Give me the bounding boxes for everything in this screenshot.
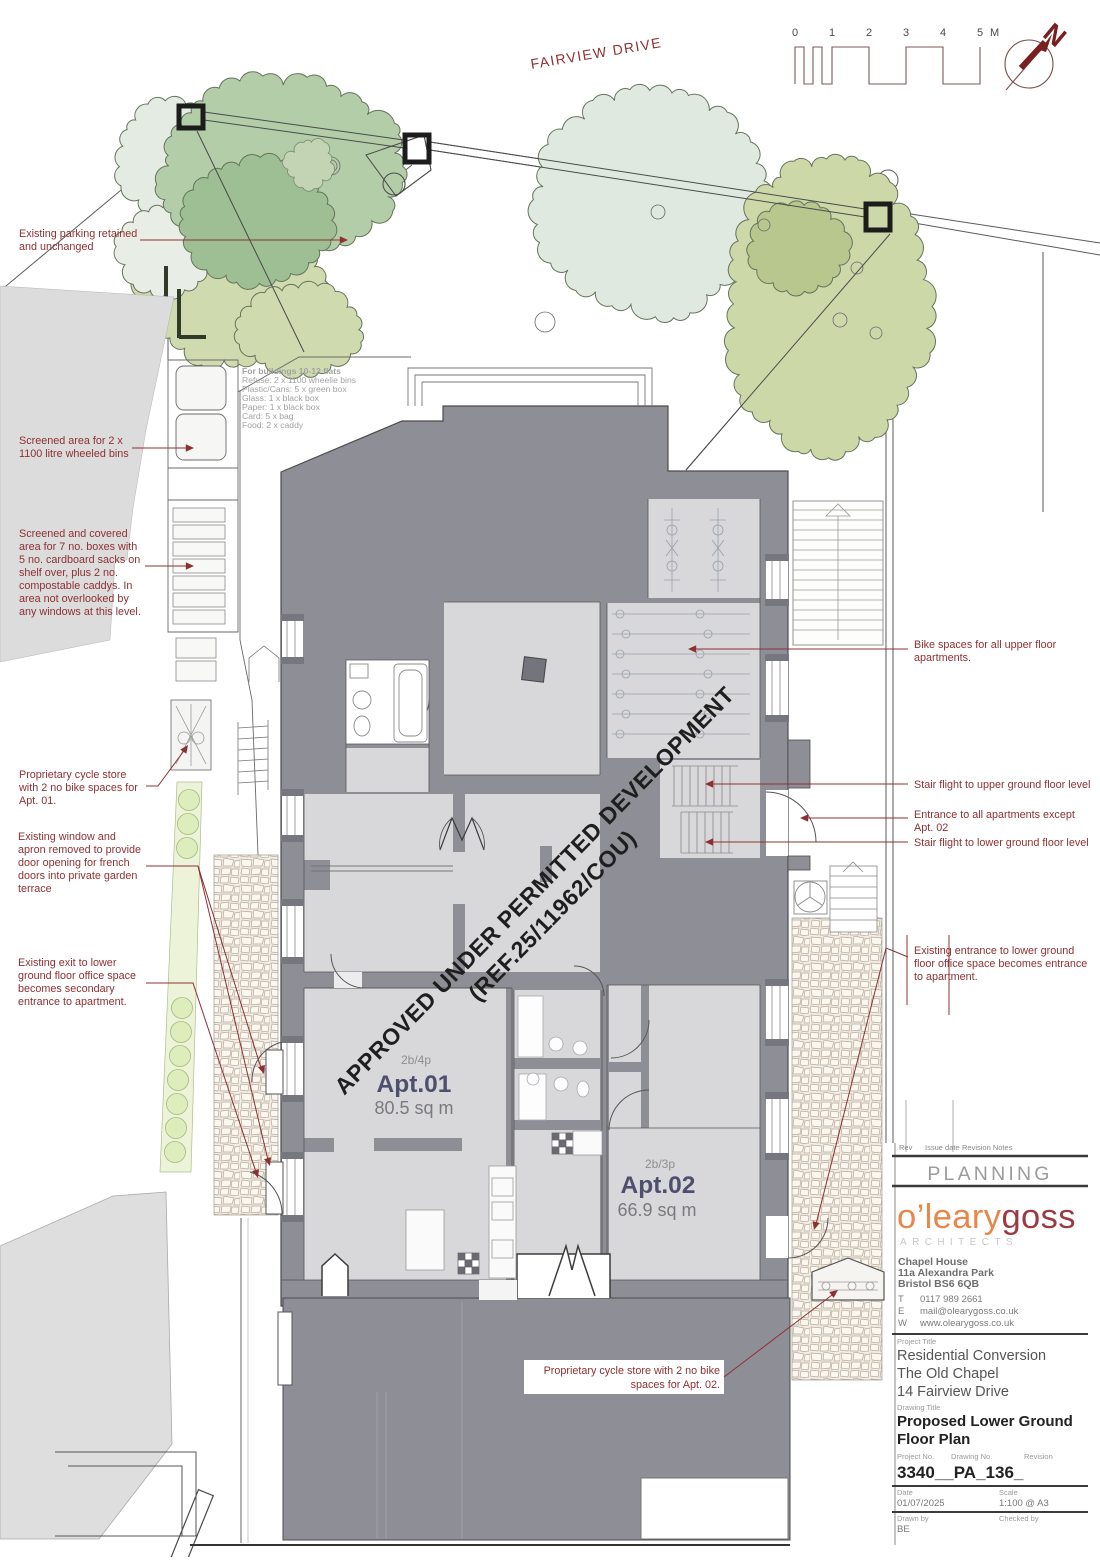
svg-text:1: 1 — [829, 27, 835, 39]
svg-text:and unchanged: and unchanged — [19, 241, 93, 253]
svg-text:shelf over, plus 2 no.: shelf over, plus 2 no. — [19, 567, 118, 579]
svg-text:becomes secondary: becomes secondary — [18, 983, 115, 995]
svg-text:Existing entrance to lower gro: Existing entrance to lower ground — [914, 945, 1074, 957]
svg-text:door opening for french: door opening for french — [18, 857, 130, 869]
svg-text:80.5 sq m: 80.5 sq m — [374, 1098, 453, 1118]
svg-text:floor office space becomes ent: floor office space becomes entrance — [914, 958, 1087, 970]
svg-text:doors into private garden: doors into private garden — [18, 870, 137, 882]
svg-text:E: E — [898, 1306, 904, 1317]
svg-text:2b/4p: 2b/4p — [401, 1053, 431, 1067]
svg-text:T: T — [898, 1294, 904, 1305]
svg-text:Date: Date — [897, 1488, 913, 1497]
svg-text:3: 3 — [903, 27, 909, 39]
svg-text:Project No.: Project No. — [897, 1452, 934, 1461]
svg-text:apartments.: apartments. — [914, 652, 971, 664]
svg-text:PLANNING: PLANNING — [927, 1163, 1052, 1185]
svg-text:Checked by: Checked by — [999, 1514, 1039, 1523]
svg-text:apron removed to provide: apron removed to provide — [18, 844, 141, 856]
svg-text:Residential Conversion: Residential Conversion — [897, 1348, 1046, 1364]
svg-text:compostable caddys. In: compostable caddys. In — [19, 580, 132, 592]
svg-text:2: 2 — [866, 27, 872, 39]
svg-text:66.9 sq m: 66.9 sq m — [617, 1200, 696, 1220]
svg-text:2b/3p: 2b/3p — [645, 1157, 675, 1171]
svg-text:ARCHITECTS: ARCHITECTS — [900, 1237, 1018, 1248]
svg-text:o’learygoss: o’learygoss — [897, 1198, 1076, 1236]
svg-text:Bristol BS6 6QB: Bristol BS6 6QB — [898, 1278, 980, 1290]
svg-text:Drawn by: Drawn by — [897, 1514, 929, 1523]
svg-text:5: 5 — [977, 27, 983, 39]
svg-text:Proposed Lower Ground: Proposed Lower Ground — [897, 1413, 1073, 1430]
svg-text:Existing parking retained: Existing parking retained — [19, 228, 137, 240]
svg-text:Revision: Revision — [1024, 1452, 1053, 1461]
svg-text:Existing window and: Existing window and — [18, 831, 116, 843]
svg-text:Apt.01: Apt.01 — [377, 1071, 452, 1098]
svg-text:terrace: terrace — [18, 883, 52, 895]
svg-text:Existing exit to lower: Existing exit to lower — [18, 957, 117, 969]
svg-text:1:100 @ A3: 1:100 @ A3 — [999, 1498, 1049, 1509]
svg-text:Screened and covered: Screened and covered — [19, 528, 128, 540]
svg-text:Food: 2 x caddy: Food: 2 x caddy — [242, 420, 304, 430]
svg-text:M: M — [990, 27, 999, 39]
svg-text:Proprietary cycle store with 2: Proprietary cycle store with 2 no bike — [544, 1365, 720, 1377]
svg-text:Project Title: Project Title — [897, 1337, 936, 1346]
svg-text:Revision Notes: Revision Notes — [962, 1143, 1013, 1152]
svg-text:14 Fairview Drive: 14 Fairview Drive — [897, 1384, 1009, 1400]
svg-text:Drawing Title: Drawing Title — [897, 1403, 940, 1412]
svg-text:Apt.02: Apt.02 — [621, 1172, 696, 1199]
svg-text:Floor Plan: Floor Plan — [897, 1431, 970, 1448]
svg-text:Screened area for 2 x: Screened area for 2 x — [19, 435, 123, 447]
svg-text:Proprietary cycle store: Proprietary cycle store — [19, 769, 126, 781]
svg-text:W: W — [898, 1318, 907, 1329]
svg-text:0117 989 2661: 0117 989 2661 — [920, 1294, 983, 1305]
svg-text:The Old Chapel: The Old Chapel — [897, 1366, 999, 1382]
svg-text:Stair flight to lower ground f: Stair flight to lower ground floor level — [914, 837, 1089, 849]
svg-text:with 2 no bike spaces for: with 2 no bike spaces for — [18, 782, 138, 794]
svg-text:4: 4 — [940, 27, 946, 39]
svg-text:Drawing No.: Drawing No. — [951, 1452, 992, 1461]
svg-text:entrance to apartment.: entrance to apartment. — [18, 996, 127, 1008]
svg-text:1100 litre wheeled bins: 1100 litre wheeled bins — [19, 448, 129, 460]
svg-text:spaces for Apt. 02.: spaces for Apt. 02. — [631, 1379, 720, 1391]
svg-text:area for 7 no. boxes with: area for 7 no. boxes with — [19, 541, 137, 553]
svg-text:5 no. cardboard sacks on: 5 no. cardboard sacks on — [19, 554, 140, 566]
svg-text:www.olearygoss.co.uk: www.olearygoss.co.uk — [919, 1318, 1014, 1329]
svg-text:mail@olearygoss.co.uk: mail@olearygoss.co.uk — [920, 1306, 1019, 1317]
svg-text:01/07/2025: 01/07/2025 — [897, 1498, 945, 1509]
svg-text:BE: BE — [897, 1524, 910, 1535]
svg-text:Issue date: Issue date — [925, 1143, 960, 1152]
svg-text:Apt. 02: Apt. 02 — [914, 822, 948, 834]
svg-text:ground floor office space: ground floor office space — [18, 970, 136, 982]
svg-text:Entrance to all apartments exc: Entrance to all apartments except — [914, 809, 1075, 821]
svg-text:area not overlooked by: area not overlooked by — [19, 593, 129, 605]
svg-text:0: 0 — [792, 27, 798, 39]
svg-text:Rev: Rev — [899, 1143, 913, 1152]
svg-text:Scale: Scale — [999, 1488, 1018, 1497]
svg-text:3340__PA_136_: 3340__PA_136_ — [897, 1463, 1024, 1482]
svg-text:Apt. 01.: Apt. 01. — [19, 795, 56, 807]
svg-text:any windows at this level.: any windows at this level. — [19, 606, 141, 618]
svg-text:to apartment.: to apartment. — [914, 971, 978, 983]
svg-text:Stair flight to upper ground f: Stair flight to upper ground floor level — [914, 779, 1090, 791]
svg-text:Bike spaces for all upper floo: Bike spaces for all upper floor — [914, 639, 1057, 651]
